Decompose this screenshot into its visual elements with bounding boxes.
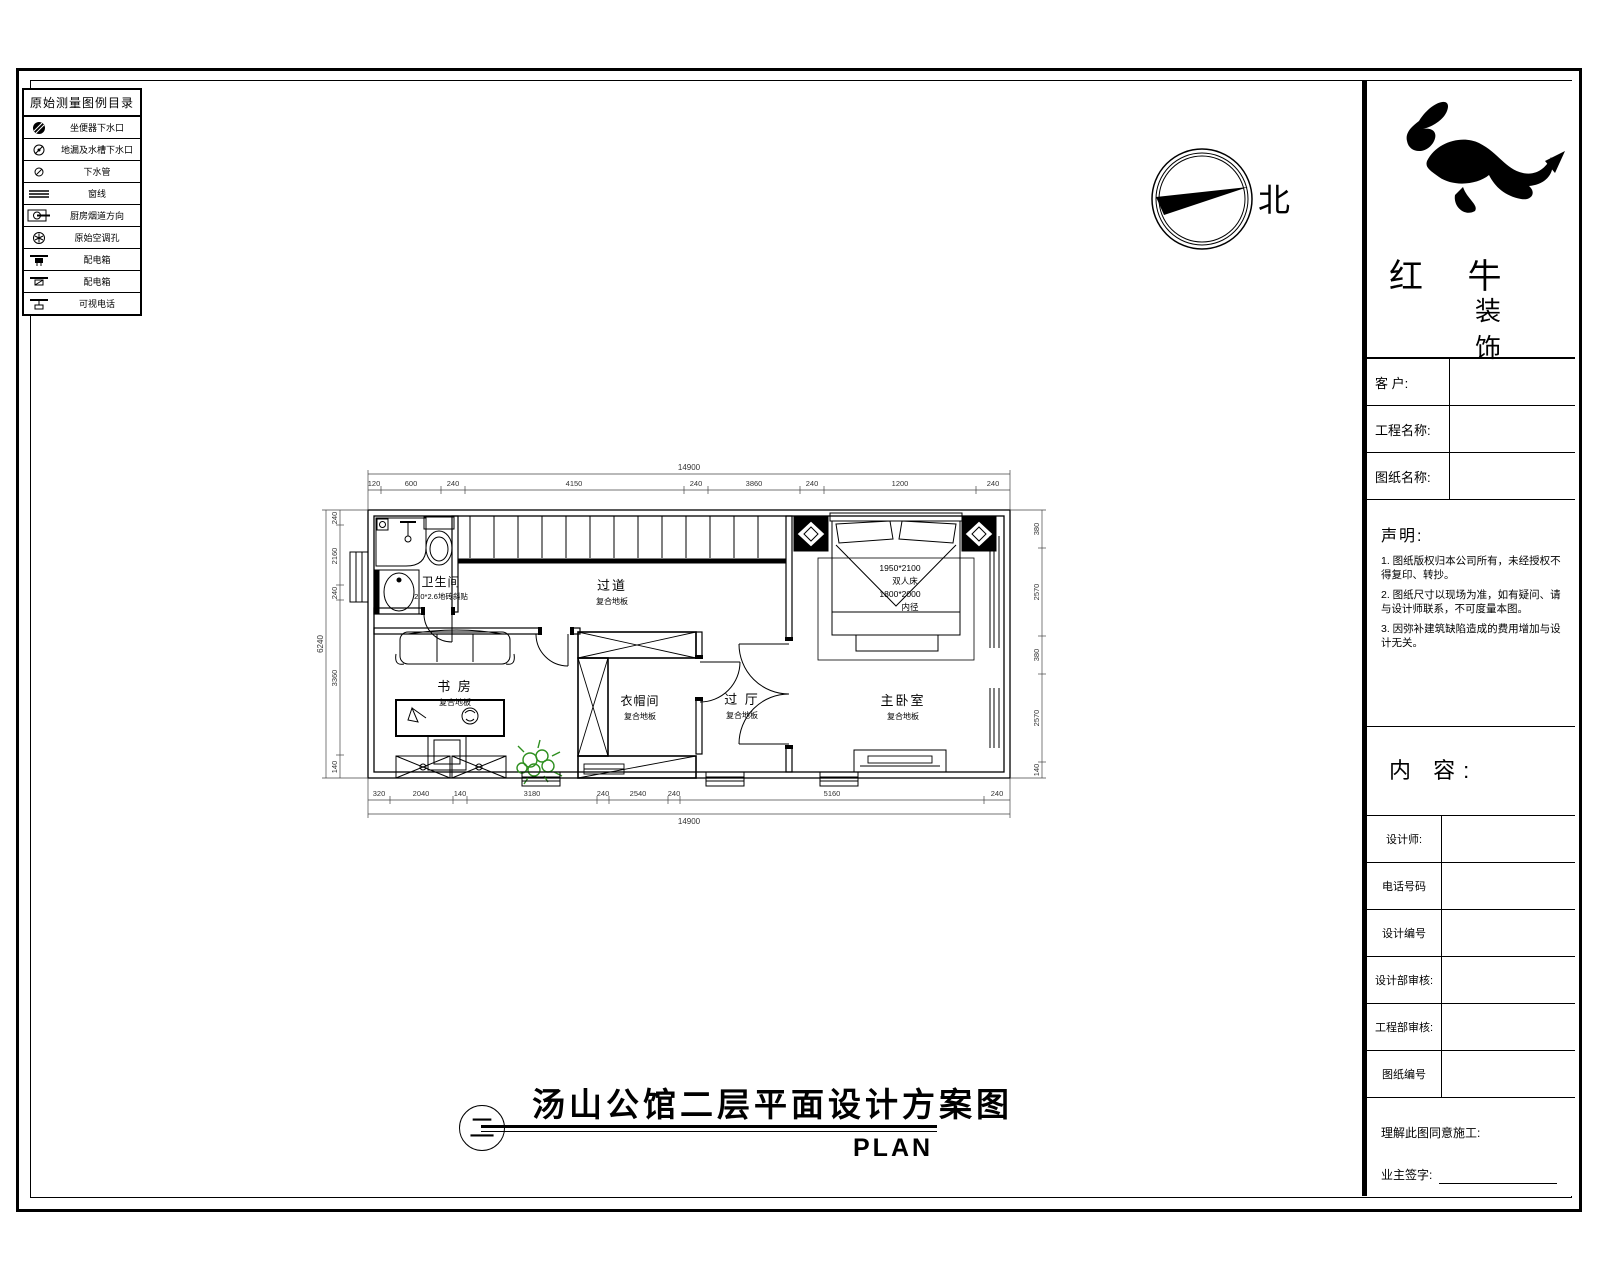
statement-note: 2. 图纸尺寸以现场为准，如有疑问、请与设计师联系，不可度量本图。	[1381, 588, 1565, 616]
content-label: 内 容:	[1389, 753, 1477, 785]
owner-sign-label: 业主签字:	[1381, 1166, 1432, 1183]
field-row-project: 工程名称:	[1367, 406, 1575, 453]
floor-marker: 二	[459, 1105, 505, 1151]
dim-label: 240	[987, 479, 1000, 488]
dim-label: 2040	[413, 789, 430, 798]
bed-label: 双人床	[892, 576, 918, 586]
dim-label: 2570	[1032, 710, 1041, 727]
pipe-icon	[24, 166, 54, 178]
dim-label: 120	[368, 479, 381, 488]
sofa	[400, 632, 510, 664]
phone-value	[1442, 863, 1575, 909]
field-row-client: 客 户:	[1367, 358, 1575, 406]
rug	[818, 558, 974, 660]
dim-label: 240	[330, 587, 339, 600]
dim-label: 380	[1032, 649, 1041, 662]
toilet-drain-icon	[24, 120, 54, 136]
legend-row: 坐便器下水口	[24, 117, 140, 139]
redbull-logo-icon	[1367, 91, 1575, 251]
signature-section: 理解此图同意施工: 业主签字:	[1367, 1098, 1575, 1214]
ac-hole-icon	[24, 231, 54, 245]
design-no-value	[1442, 910, 1575, 956]
field-row-design-review: 设计部审核:	[1367, 957, 1575, 1004]
client-value	[1450, 359, 1575, 405]
eng-review-value	[1442, 1004, 1575, 1050]
room-sublabel: 复合地板	[624, 711, 656, 721]
legend-row: 可视电话	[24, 293, 140, 314]
dim-label: 240	[991, 789, 1004, 798]
windows	[350, 536, 999, 786]
field-row-sheet-no: 图纸编号	[1367, 1051, 1575, 1098]
north-arrow: 北	[1148, 145, 1308, 262]
room-label: 书 房	[437, 679, 473, 694]
outer-walls	[368, 510, 1010, 778]
field-row-designer: 设计师:	[1367, 816, 1575, 863]
bed-label: 内径	[901, 602, 919, 612]
drawing-title: 汤山公馆二层平面设计方案图	[532, 1078, 1013, 1126]
flue-icon	[24, 208, 54, 223]
brand-area: 红 牛 装 饰	[1367, 81, 1575, 358]
design-review-value	[1442, 957, 1575, 1003]
floor-plan: 卫生间 2.0*2.6地砖斜贴 过道 复合地板 书 房 复合地板 衣帽间 复合地…	[310, 440, 1080, 850]
statement-section: 声明: 1. 图纸版权归本公司所有，未经授权不得复印、转抄。 2. 图纸尺寸以现…	[1367, 500, 1575, 727]
bed-bench	[856, 635, 938, 651]
dim-label: 140	[330, 761, 339, 774]
room-sublabel: 复合地板	[726, 710, 758, 720]
dim-label: 14900	[678, 817, 701, 826]
dim-label: 240	[668, 789, 681, 798]
dim-label: 240	[447, 479, 460, 488]
field-row-eng-review: 工程部审核:	[1367, 1004, 1575, 1051]
legend-box: 原始测量图例目录 坐便器下水口 地漏及水槽下水口 下水管 窗线 厨房烟道方向 原…	[22, 88, 142, 316]
dim-label: 240	[330, 512, 339, 525]
plan-label: PLAN	[853, 1134, 933, 1163]
dim-label: 140	[1032, 764, 1041, 777]
floor-drain-icon	[24, 143, 54, 157]
toilet-tank	[424, 517, 454, 529]
room-label: 衣帽间	[620, 693, 659, 708]
content-section: 内 容:	[1367, 727, 1575, 816]
dim-label: 2160	[330, 548, 339, 565]
title-underline-thin	[481, 1131, 937, 1132]
bed-label: 1800*2000	[879, 589, 920, 599]
sheet-no-value	[1442, 1051, 1575, 1097]
window-line-icon	[24, 189, 54, 199]
power-box-icon	[24, 253, 54, 266]
bedroom-furniture	[794, 513, 996, 772]
dim-label: 380	[1032, 523, 1041, 536]
field-row-design-no: 设计编号	[1367, 910, 1575, 957]
room-label: 过道	[597, 578, 627, 593]
statement-note: 1. 图纸版权归本公司所有，未经授权不得复印、转抄。	[1381, 554, 1565, 582]
north-label: 北	[1258, 182, 1290, 218]
legend-row: 厨房烟道方向	[24, 205, 140, 227]
legend-row: 窗线	[24, 183, 140, 205]
north-arrow-pointer	[1156, 187, 1248, 215]
legend-row: 配电箱	[24, 271, 140, 293]
stairs	[458, 516, 786, 563]
legend-row: 配电箱	[24, 249, 140, 271]
power-box2-icon	[24, 275, 54, 288]
dim-label: 600	[405, 479, 418, 488]
dim-label: 3360	[330, 670, 339, 687]
dim-label: 3860	[746, 479, 763, 488]
room-label: 主卧室	[880, 693, 925, 708]
room-label: 过 厅	[724, 692, 760, 707]
dim-label: 14900	[678, 463, 701, 472]
room-label: 卫生间	[421, 575, 460, 589]
drawing-value	[1450, 453, 1575, 499]
dim-label: 240	[806, 479, 819, 488]
title-block: 红 牛 装 饰 客 户: 工程名称: 图纸名称: 声明: 1. 图纸版权归本公司…	[1362, 81, 1575, 1196]
dim-label: 3180	[524, 789, 541, 798]
dim-label: 240	[597, 789, 610, 798]
room-sublabel: 复合地板	[887, 711, 919, 721]
agree-label: 理解此图同意施工:	[1381, 1124, 1480, 1141]
headboard	[830, 513, 962, 521]
videophone-icon	[24, 297, 54, 310]
legend-row: 原始空调孔	[24, 227, 140, 249]
legend-row: 地漏及水槽下水口	[24, 139, 140, 161]
dim-label: 2540	[630, 789, 647, 798]
statement-title: 声明:	[1381, 522, 1565, 546]
field-row-drawing: 图纸名称:	[1367, 453, 1575, 500]
room-labels: 卫生间 2.0*2.6地砖斜贴 过道 复合地板 书 房 复合地板 衣帽间 复合地…	[414, 563, 925, 721]
dim-label: 320	[373, 789, 386, 798]
project-value	[1450, 406, 1575, 452]
dim-label: 6240	[316, 635, 325, 653]
dim-label: 1200	[892, 479, 909, 488]
dim-label: 2570	[1032, 584, 1041, 601]
legend-row: 下水管	[24, 161, 140, 183]
statement-note: 3. 因弥补建筑缺陷造成的费用增加与设计无关。	[1381, 622, 1565, 650]
dim-label: 140	[454, 789, 467, 798]
field-row-phone: 电话号码	[1367, 863, 1575, 910]
designer-value	[1442, 816, 1575, 862]
bed-label: 1950*2100	[879, 563, 920, 573]
dim-label: 4150	[566, 479, 583, 488]
legend-title: 原始测量图例目录	[24, 90, 140, 117]
signature-line	[1439, 1182, 1557, 1184]
dim-label: 5160	[824, 789, 841, 798]
room-sublabel: 2.0*2.6地砖斜贴	[414, 591, 468, 601]
room-sublabel: 复合地板	[596, 596, 628, 606]
brand-name-2: 装 饰	[1475, 291, 1575, 365]
room-sublabel: 复合地板	[439, 697, 471, 707]
dim-label: 240	[690, 479, 703, 488]
